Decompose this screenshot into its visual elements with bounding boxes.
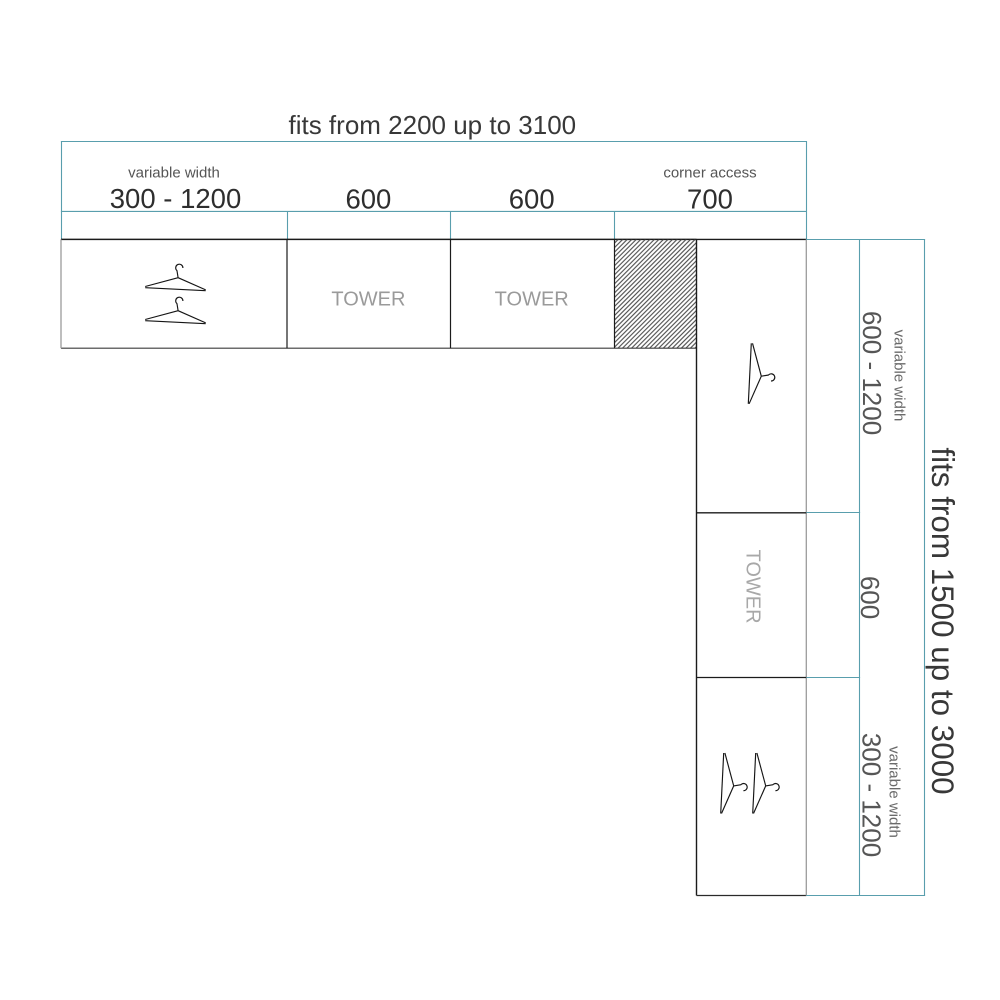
svg-text:600: 600 (855, 576, 885, 619)
svg-text:variable width: variable width (886, 746, 903, 838)
svg-text:300 - 1200: 300 - 1200 (857, 733, 887, 857)
svg-text:variable width: variable width (891, 330, 908, 422)
svg-text:fits from 2200 up to 3100: fits from 2200 up to 3100 (288, 110, 576, 140)
svg-text:600 - 1200: 600 - 1200 (857, 311, 887, 435)
svg-text:300 - 1200: 300 - 1200 (110, 183, 242, 214)
svg-text:700: 700 (687, 184, 733, 215)
svg-text:corner access: corner access (663, 165, 756, 182)
svg-text:fits from 1500 up to 3000: fits from 1500 up to 3000 (925, 447, 960, 794)
svg-text:variable width: variable width (128, 165, 220, 182)
svg-text:600: 600 (509, 184, 555, 215)
svg-text:TOWER: TOWER (495, 289, 569, 311)
svg-text:TOWER: TOWER (331, 289, 405, 311)
svg-text:TOWER: TOWER (742, 549, 764, 623)
svg-text:600: 600 (345, 184, 391, 215)
